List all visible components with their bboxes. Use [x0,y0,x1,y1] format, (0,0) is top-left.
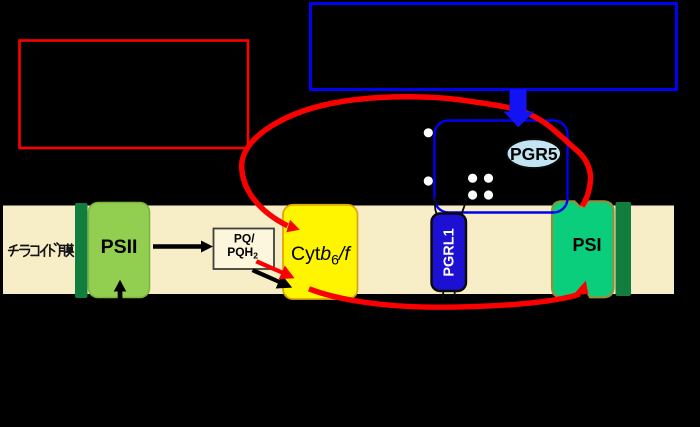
svg-text:PGRL1: PGRL1 [442,228,458,276]
svg-text:PSI: PSI [572,235,601,255]
svg-text:PGR5: PGR5 [510,144,558,164]
svg-text:PSII: PSII [101,236,138,258]
svg-text:Cytb6/f: Cytb6/f [291,243,352,268]
svg-text:PQ/: PQ/ [234,231,255,245]
